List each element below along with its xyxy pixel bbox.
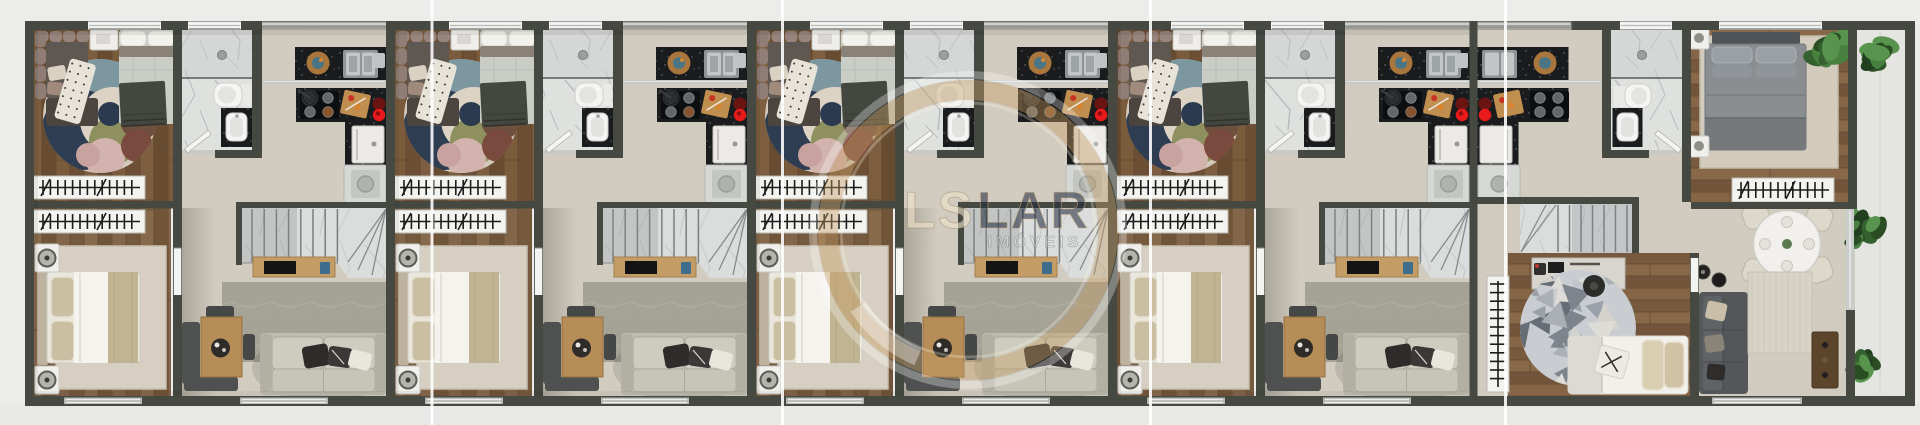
svg-text:IMÓVEIS: IMÓVEIS	[988, 232, 1083, 251]
svg-text:LS: LS	[904, 182, 974, 240]
svg-text:LAR: LAR	[977, 182, 1090, 240]
